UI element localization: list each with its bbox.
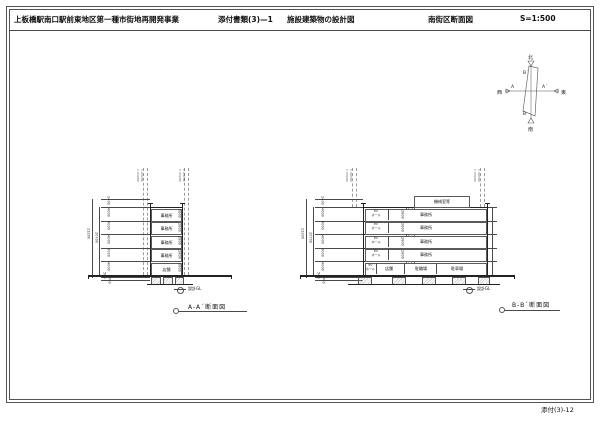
section-extent-line: [188, 168, 189, 275]
level-mark: ▽23200: [473, 168, 476, 182]
wall-left: [363, 203, 364, 275]
dim-floor: 4000: [106, 262, 110, 271]
dim-line-subtotal: [99, 207, 100, 277]
section-b-title: B-B´断面図: [512, 300, 550, 309]
room-ev-hall: EVホール: [367, 250, 385, 257]
parapet-cap: [485, 203, 490, 204]
dim-ceiling: 2800: [400, 210, 404, 219]
section-a-title: A-A´断面図: [188, 302, 226, 311]
dim-total: 23200: [300, 228, 304, 239]
benchmark-line: [463, 289, 475, 290]
hall-label: ホール: [366, 267, 375, 271]
dim-total: 23200: [86, 228, 90, 239]
level-mark: ▽20700: [477, 168, 480, 182]
dim-tick: [487, 261, 497, 262]
dim-pit: 700: [321, 277, 325, 284]
dim-tick: [487, 234, 497, 235]
partition: [404, 263, 405, 274]
point-a-prime-label: A´: [542, 84, 547, 90]
dim-ceiling: 2800: [177, 236, 181, 245]
room-bicycle-parking: 駐輪場: [415, 266, 427, 272]
key-plan: 北 南 西 東 A A´ B´ B: [497, 53, 571, 133]
scale-label: S=1:500: [520, 14, 556, 23]
dim-floor: 4000: [106, 221, 110, 230]
level-mark: ▽23200: [178, 168, 181, 182]
section-extent-line: [356, 168, 357, 207]
wall-right: [182, 203, 183, 275]
partition: [436, 263, 437, 274]
document-number: 添付書類(3)—1: [218, 14, 273, 25]
dim-pit: 700: [107, 277, 111, 284]
dim-ceiling: 2800: [177, 223, 181, 232]
room-ev-hall: EVホール: [367, 210, 385, 217]
dim-ceiling: 2800: [400, 250, 404, 259]
partition: [388, 222, 389, 233]
point-b-label: B: [523, 111, 526, 117]
west-label: 西: [497, 90, 502, 96]
dim-line-total: [92, 199, 93, 278]
partition: [388, 249, 389, 260]
dim-ceiling: 2800: [177, 250, 181, 259]
hall-label: ホール: [371, 253, 380, 257]
room-office-2f: 事務所: [420, 252, 432, 258]
dim-line-right: [492, 207, 493, 275]
document-title: 施設建築物の設計図: [287, 14, 355, 25]
east-label: 東: [561, 89, 566, 96]
level-mark: ▽20700: [349, 168, 352, 182]
foundation-base: [147, 284, 193, 285]
dim-floor: 4000: [320, 262, 324, 271]
wall-right: [487, 203, 488, 275]
dim-line-total: [306, 199, 307, 278]
level-mark: ▽23200: [136, 168, 139, 182]
dim-line-subtotal: [313, 207, 314, 277]
dim-floor: 4000: [106, 208, 110, 217]
room-car-parking: 駐車場: [451, 266, 463, 272]
ground-tick: [514, 275, 515, 279]
dim-floor: 4000: [320, 221, 324, 230]
hall-label: ホール: [371, 240, 380, 244]
dim-subtotal: 20700: [94, 232, 98, 243]
level-mark: ▽20700: [182, 168, 185, 182]
dim-floor: 4000: [106, 248, 110, 257]
title-underline: [503, 310, 560, 311]
roof-slab: [150, 207, 183, 208]
north-label: 北: [528, 54, 533, 61]
dim-ceiling: 2800: [177, 209, 181, 218]
gl-label: 設計GL: [477, 286, 490, 292]
ground-tick: [231, 275, 232, 279]
hall-label: ホール: [371, 226, 380, 230]
ground-tick: [88, 275, 89, 279]
room-office-3f: 事務所: [420, 239, 432, 245]
level-mark: ▽20700: [140, 168, 143, 182]
level-mark: ▽23200: [345, 168, 348, 182]
sheet-title: 南街区断面図: [428, 14, 473, 25]
sheet-number: 添付(3)-12: [541, 404, 574, 414]
section-extent-line: [184, 168, 185, 275]
room-ev-hall: EVホール: [367, 237, 385, 244]
hall-label: ホール: [371, 213, 380, 217]
partition: [376, 263, 377, 274]
penthouse-machine-room: 機械室等: [414, 196, 470, 208]
dim-floor: 4000: [106, 235, 110, 244]
room-office-5f: 事務所: [420, 212, 432, 218]
project-title: 上板橋駅南口駅前東地区第一種市街地再開発事業: [14, 14, 179, 25]
foundation-base: [348, 284, 500, 285]
dim-floor: 4000: [320, 248, 324, 257]
dim-tick: [487, 248, 497, 249]
dim-tick: [487, 221, 497, 222]
room-ev-hall: EVホール: [367, 223, 385, 230]
dim-ceiling: 2800: [400, 237, 404, 246]
room-ev-hall: EVホール: [365, 264, 376, 271]
section-extent-line: [484, 168, 485, 207]
gl-label: 設計GL: [188, 286, 201, 292]
dim-tick: [487, 207, 497, 208]
dim-parapet: 2400: [106, 196, 110, 205]
dim-floor: 4000: [320, 208, 324, 217]
title-underline: [177, 311, 247, 312]
header-divider: [9, 30, 591, 31]
partition: [388, 209, 389, 220]
parapet-cap: [361, 203, 366, 204]
south-label: 南: [528, 126, 533, 133]
room-office-4f: 事務所: [420, 225, 432, 231]
benchmark-line: [174, 289, 186, 290]
dim-floor: 4000: [320, 235, 324, 244]
dim-parapet: 2400: [320, 196, 324, 205]
room-shop-1f: 店舗: [385, 266, 393, 272]
dim-ceiling: 2800: [400, 223, 404, 232]
parapet-cap: [148, 203, 153, 204]
ground-tick: [300, 275, 301, 279]
drawing-sheet: 上板橋駅南口駅前東地区第一種市街地再開発事業 添付書類(3)—1 施設建築物の設…: [0, 0, 600, 421]
title-bullet-icon: [173, 308, 179, 314]
point-a-label: A: [511, 84, 515, 90]
title-bullet-icon: [499, 307, 505, 313]
dim-ceiling: 2800: [177, 263, 181, 272]
dim-subtotal: 20700: [308, 232, 312, 243]
partition: [388, 236, 389, 247]
point-b-prime-label: B´: [523, 70, 528, 76]
parapet-cap: [180, 203, 185, 204]
